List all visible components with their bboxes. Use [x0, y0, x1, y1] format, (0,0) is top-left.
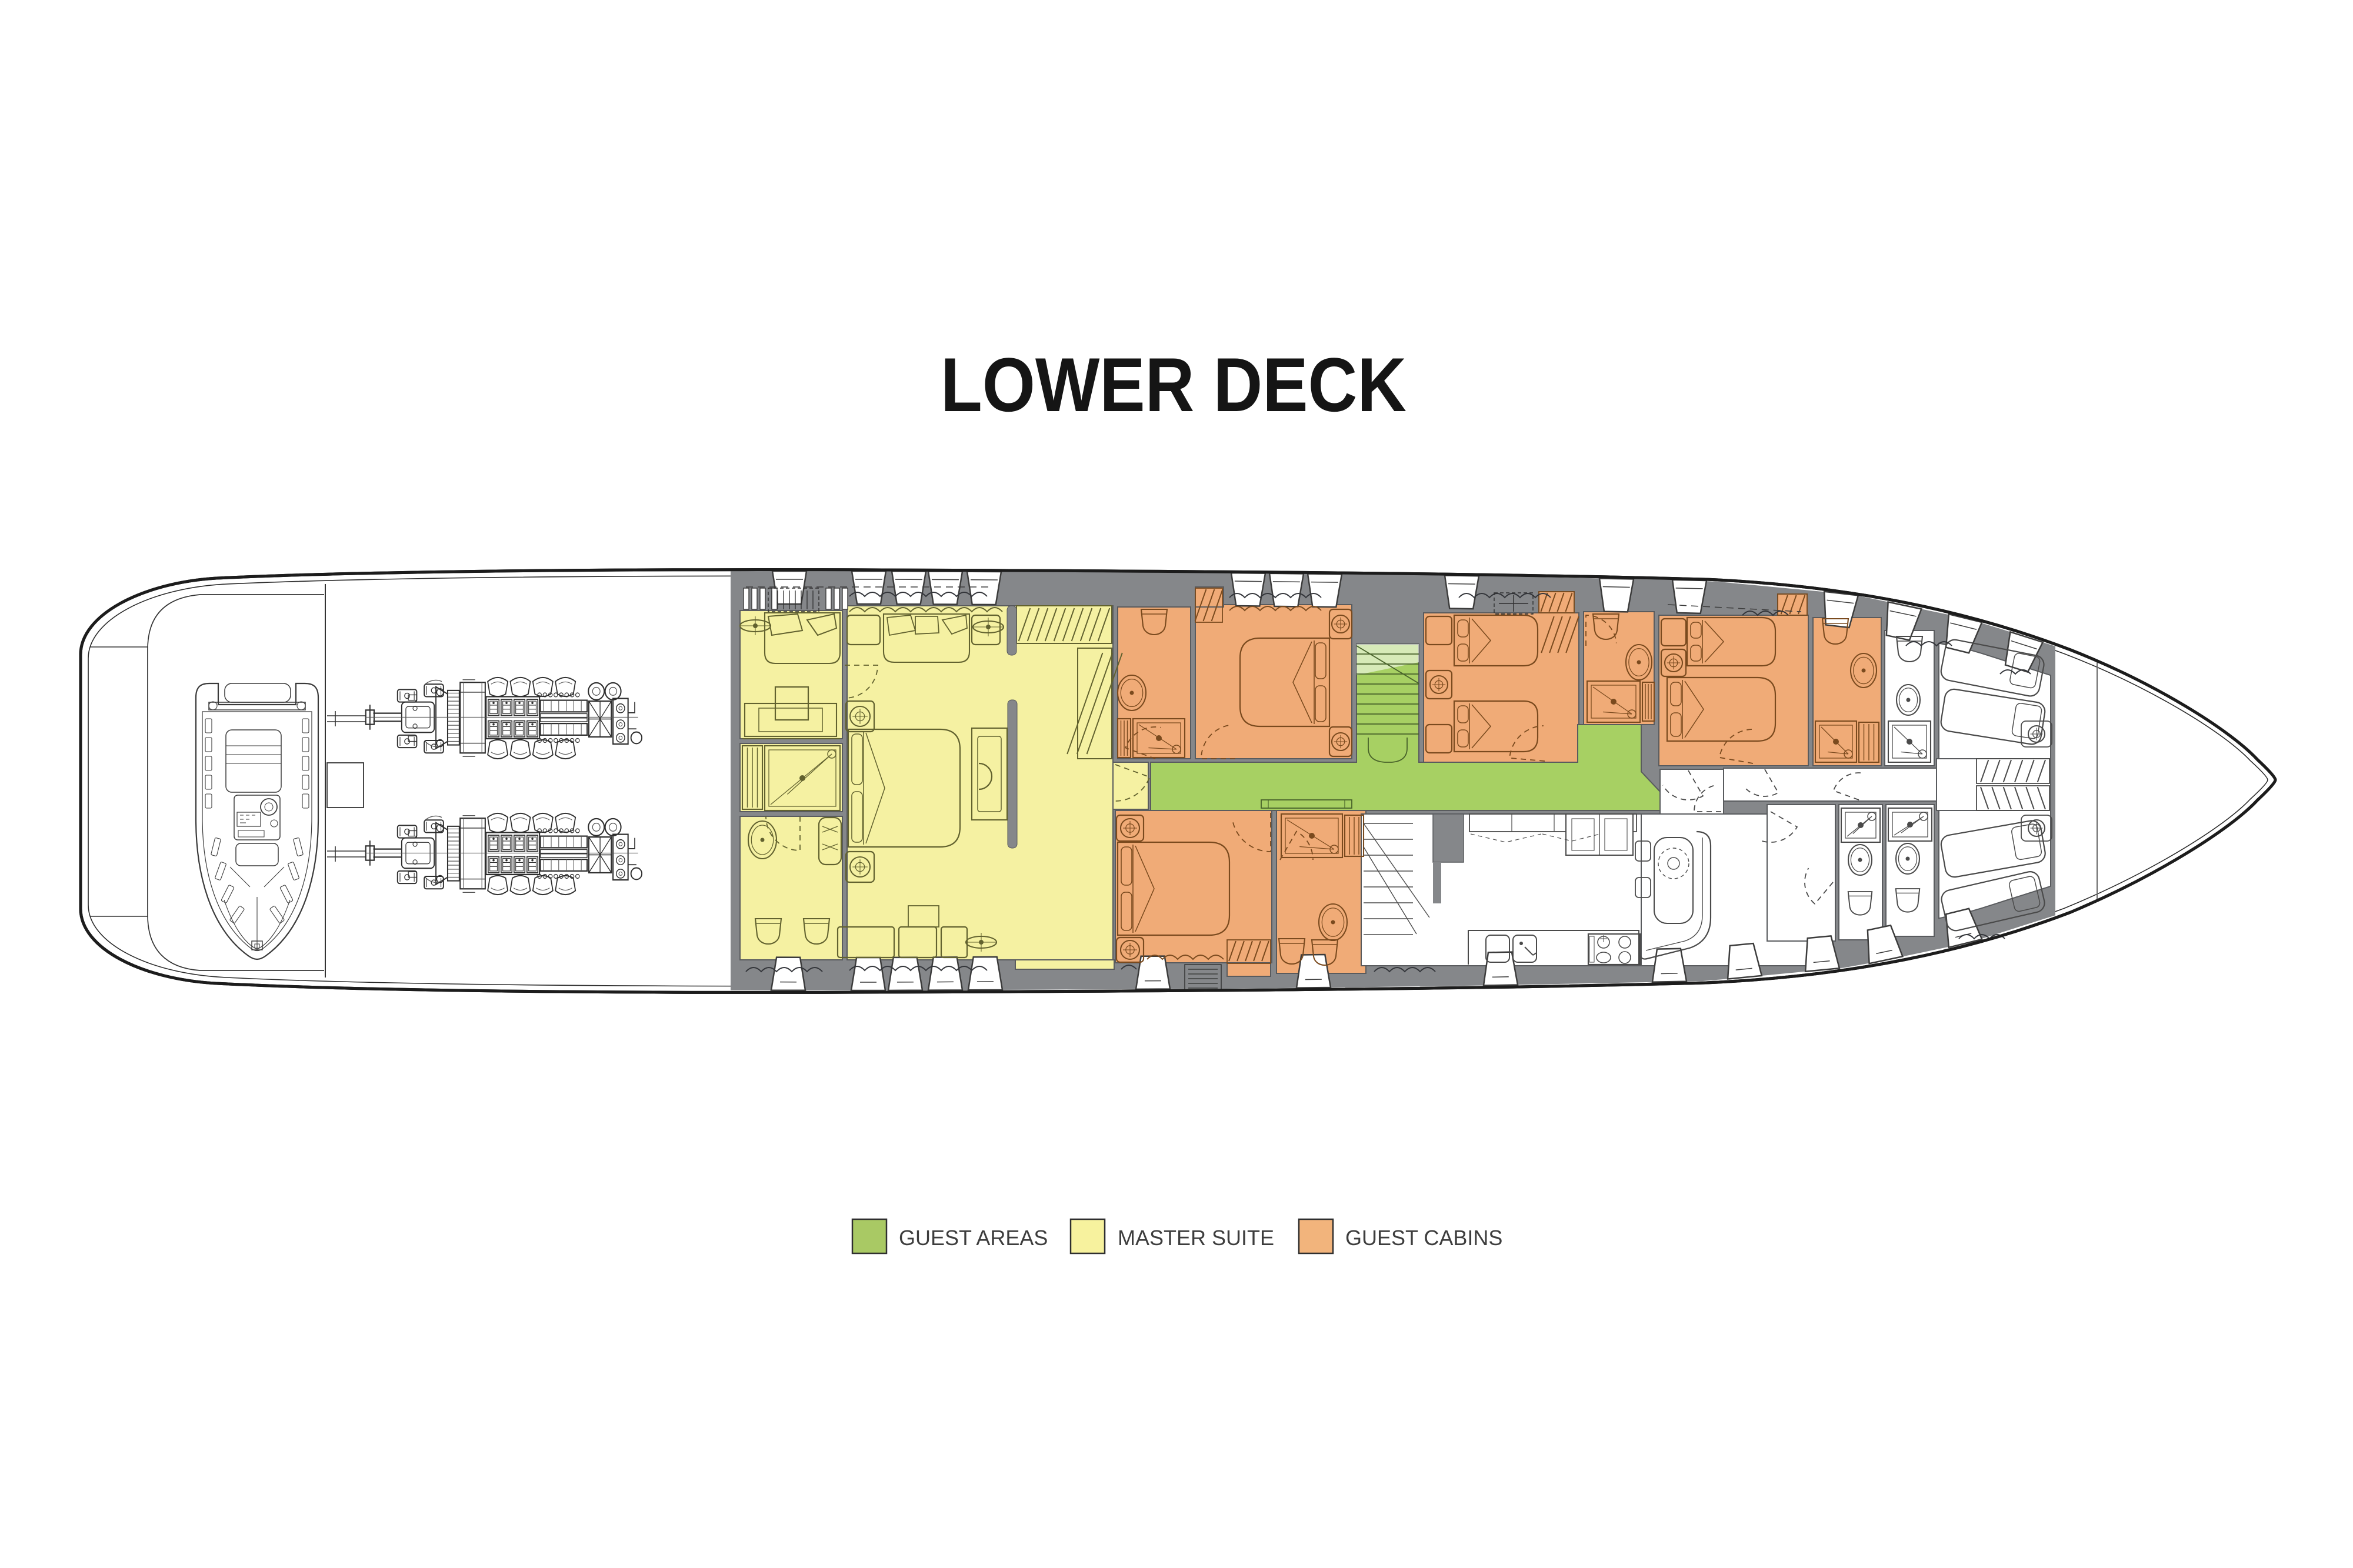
svg-text:MASTER SUITE: MASTER SUITE — [1118, 1226, 1274, 1250]
svg-text:LOWER DECK: LOWER DECK — [941, 342, 1407, 428]
svg-text:GUEST CABINS: GUEST CABINS — [1345, 1226, 1502, 1250]
svg-text:GUEST AREAS: GUEST AREAS — [899, 1226, 1048, 1250]
